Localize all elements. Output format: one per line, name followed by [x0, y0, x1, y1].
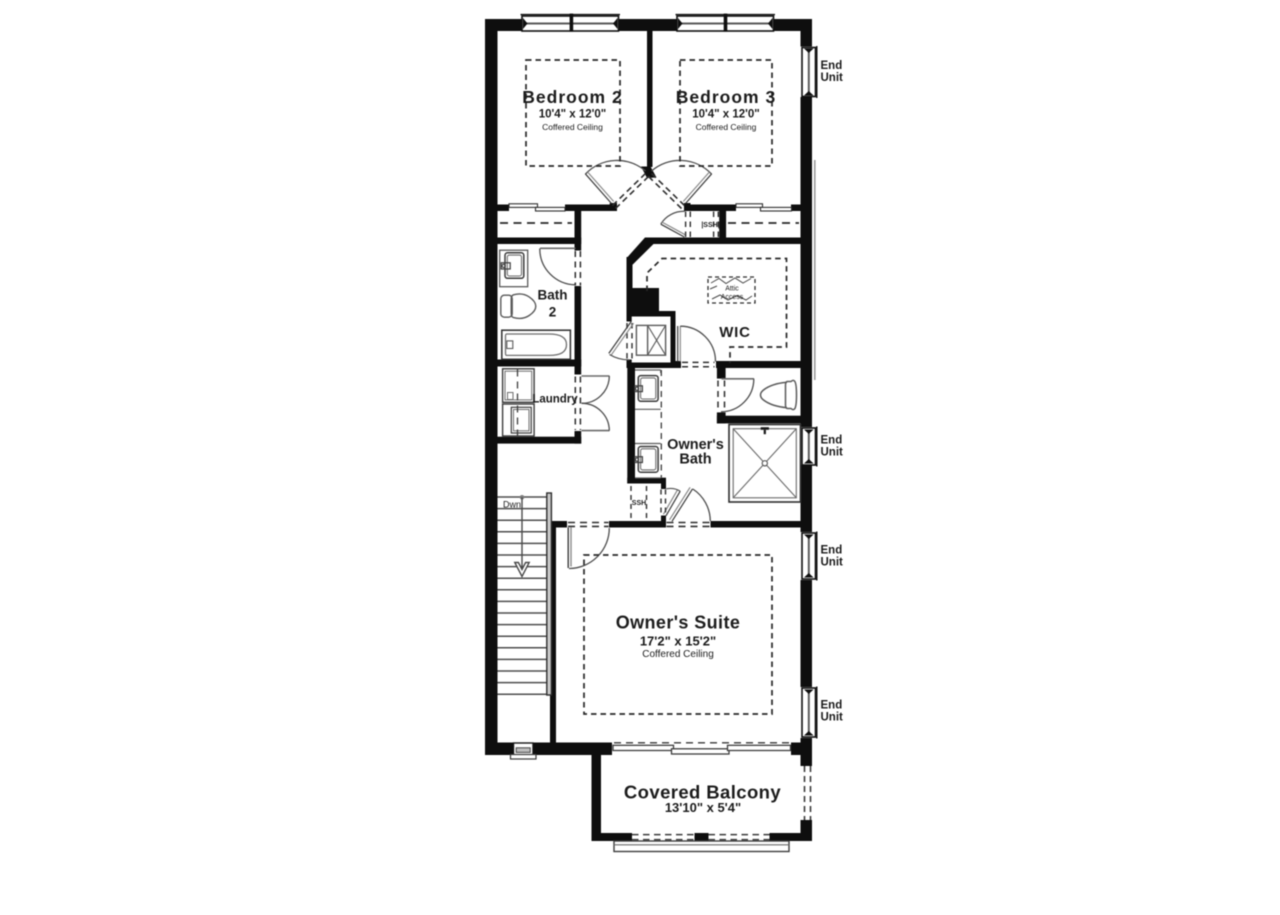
svg-text:End: End	[821, 435, 843, 447]
svg-text:WIC: WIC	[719, 324, 751, 341]
svg-text:Unit: Unit	[821, 712, 844, 724]
svg-text:Dwn: Dwn	[503, 500, 521, 510]
svg-text:Bedroom 2: Bedroom 2	[522, 87, 622, 107]
svg-text:Coffered Ceiling: Coffered Ceiling	[696, 122, 757, 132]
svg-text:Bath: Bath	[538, 288, 568, 303]
svg-text:Coffered Ceiling: Coffered Ceiling	[642, 649, 714, 660]
svg-text:|SSH|: |SSH|	[701, 222, 719, 229]
svg-text:10'4" x 12'0": 10'4" x 12'0"	[692, 109, 760, 121]
svg-text:Unit: Unit	[821, 557, 844, 569]
svg-text:Access: Access	[721, 294, 744, 301]
svg-text:Unit: Unit	[821, 447, 844, 459]
svg-text:Attic: Attic	[725, 286, 739, 293]
svg-text:End: End	[821, 545, 843, 557]
svg-text:Owner's Suite: Owner's Suite	[616, 613, 741, 633]
svg-text:End: End	[821, 700, 843, 712]
svg-text:SSH: SSH	[632, 500, 646, 507]
svg-text:Bedroom 3: Bedroom 3	[676, 87, 776, 107]
svg-text:13'10" x 5'4": 13'10" x 5'4"	[665, 800, 741, 815]
svg-text:17'2" x 15'2": 17'2" x 15'2"	[640, 634, 716, 649]
svg-text:2: 2	[549, 305, 557, 320]
svg-text:10'4" x 12'0": 10'4" x 12'0"	[539, 109, 607, 121]
svg-text:End: End	[821, 60, 843, 72]
svg-text:Coffered Ceiling: Coffered Ceiling	[542, 122, 603, 132]
svg-text:Laundry: Laundry	[532, 394, 578, 406]
svg-text:Bath: Bath	[679, 452, 711, 468]
svg-text:Unit: Unit	[821, 72, 844, 84]
